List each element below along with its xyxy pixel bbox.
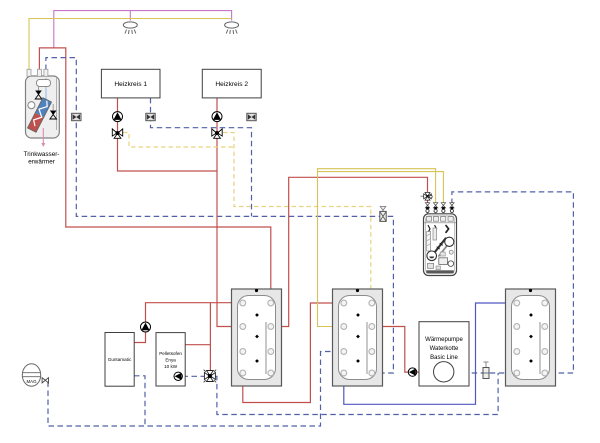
svg-text:Pelletsofen: Pelletsofen — [159, 351, 182, 356]
svg-text:Waterkotte: Waterkotte — [430, 346, 459, 352]
svg-text:Trinkwasser-: Trinkwasser- — [24, 151, 60, 158]
svg-text:Basic Line: Basic Line — [430, 355, 458, 361]
svg-text:MAG: MAG — [26, 379, 37, 384]
svg-text:erwärmer: erwärmer — [28, 158, 55, 165]
svg-text:10 kW: 10 kW — [164, 364, 178, 369]
svg-text:Heizkreis 1: Heizkreis 1 — [114, 81, 147, 88]
svg-text:Enya: Enya — [165, 358, 176, 363]
svg-text:Guntamatic: Guntamatic — [108, 357, 132, 362]
svg-text:Wärmepumpe: Wärmepumpe — [425, 337, 463, 343]
svg-text:Heizkreis 2: Heizkreis 2 — [215, 81, 248, 88]
